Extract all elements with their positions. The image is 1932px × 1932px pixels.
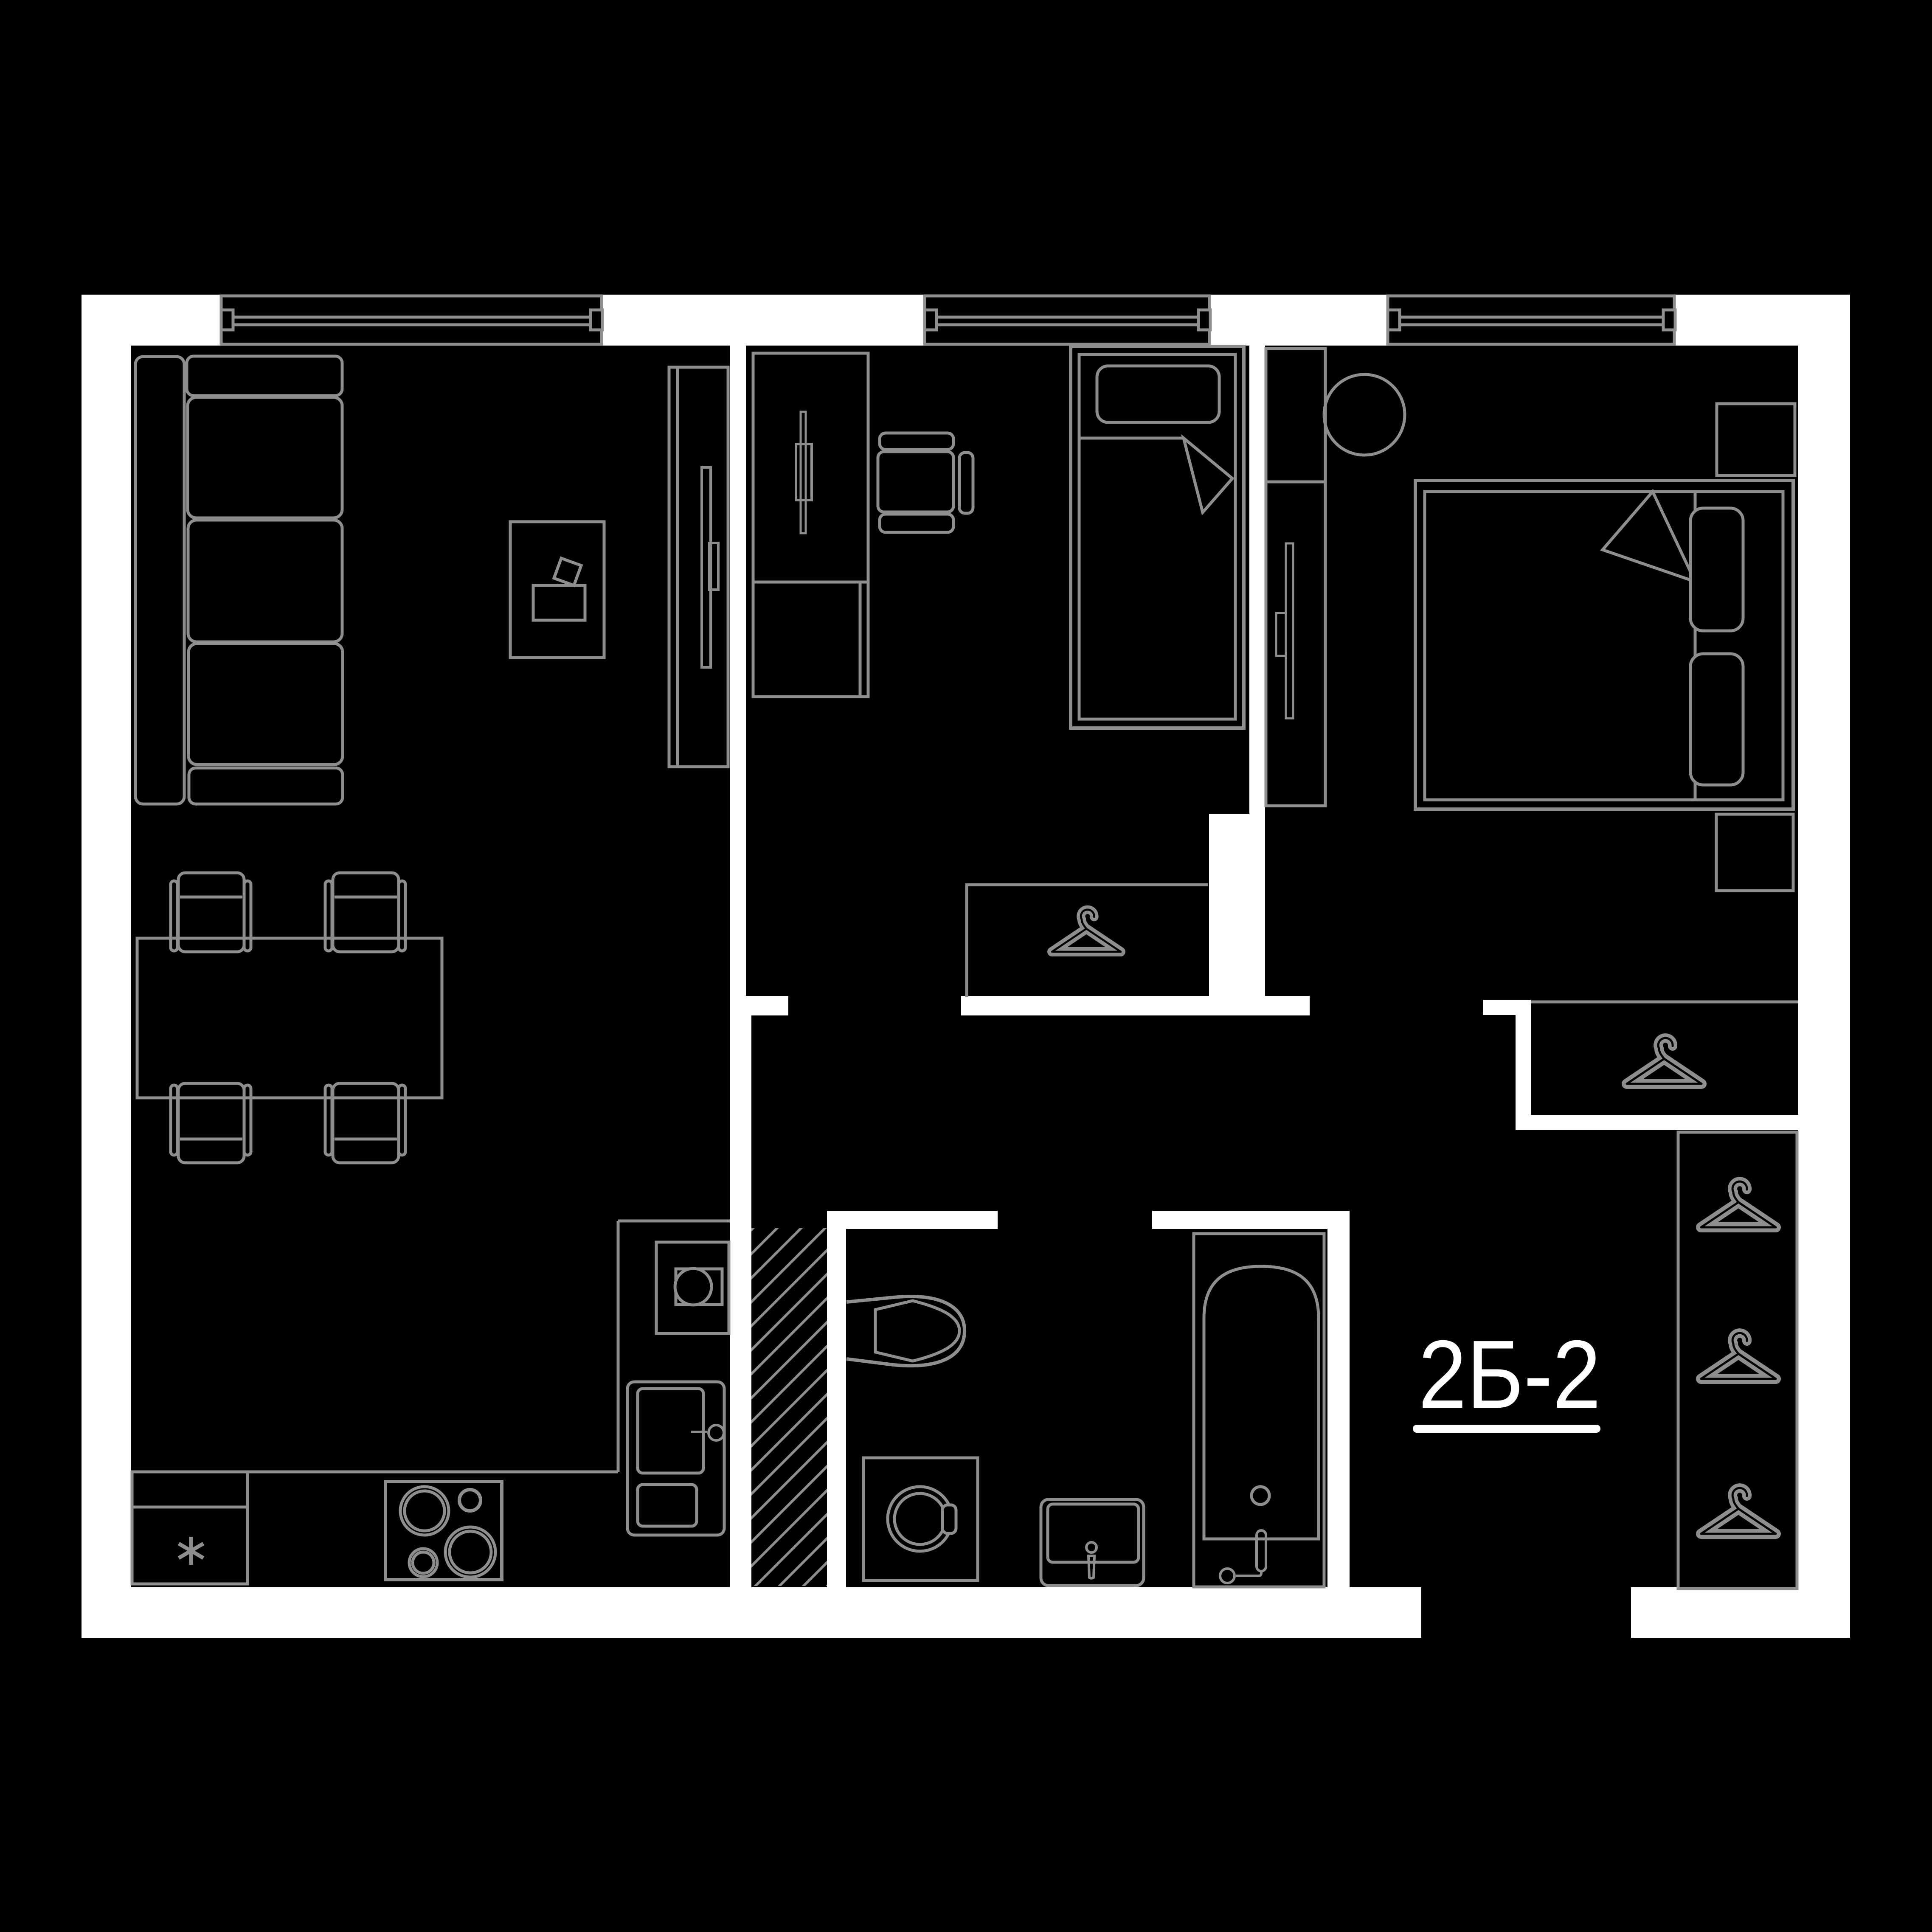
svg-text:2Б-2: 2Б-2 [1418,1321,1601,1429]
